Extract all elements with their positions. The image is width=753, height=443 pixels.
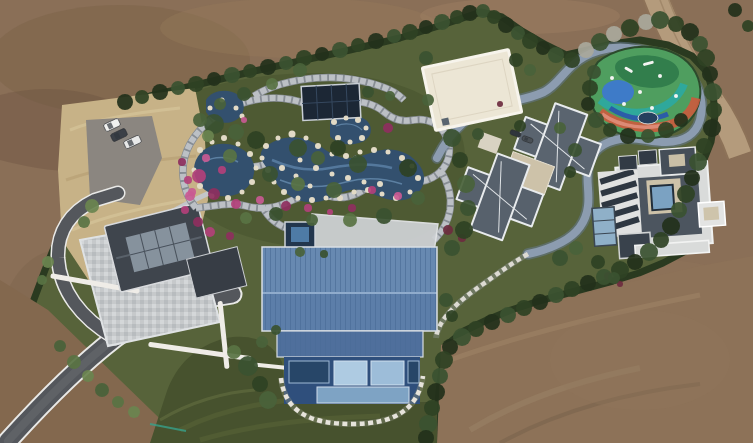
flower-bed [231,199,241,209]
tree [240,212,252,224]
pavilion-roof [301,84,361,121]
flower-bed [202,154,210,162]
flower-bed [205,227,215,237]
flower-bed [394,192,402,200]
pond-rock [304,136,309,141]
tree [432,368,448,384]
tree [117,94,133,110]
tree [516,300,532,316]
roof-seams [262,247,437,331]
tree [214,98,226,110]
tree [402,24,418,40]
tree [548,47,564,63]
tree [588,112,604,128]
tree [591,255,605,269]
tree [224,67,240,83]
east-wing-deck [703,207,719,221]
tree [193,113,207,127]
tree [446,310,458,322]
tree [368,33,384,49]
tree [279,56,293,70]
tree [320,250,328,258]
tree [243,64,257,78]
tree [608,272,620,284]
flower-bed [226,232,234,240]
pond-rock [377,181,383,187]
tree [419,51,433,65]
flower-bed [256,196,264,204]
tree [427,383,445,401]
tree [460,200,476,216]
tree [434,14,450,30]
conservatory-glass-roof [592,207,617,246]
pond-rock [415,175,421,181]
tree [228,124,244,140]
pond-rock [315,143,321,149]
pond-rock [247,151,253,157]
tree [291,177,305,191]
tree [684,170,700,186]
tree [362,86,374,98]
tree [552,250,568,266]
tree [621,19,639,37]
flower-bed [383,123,393,133]
tree [627,254,643,270]
tree [696,138,712,154]
flower-bed [181,206,189,214]
tree [152,84,168,100]
tree [293,63,307,77]
tree [269,207,283,221]
tree [95,383,109,397]
pond-rock [308,184,313,189]
pond-rock [331,119,337,125]
tree [568,143,582,157]
tree [260,59,276,75]
tree [536,41,550,55]
tree [674,113,688,127]
tree [640,243,658,261]
pond-rock [343,153,349,159]
tree [697,49,715,67]
flower-bed [188,188,196,196]
pond-rock [324,196,329,201]
tree [532,294,548,310]
pond-rock [225,195,231,201]
tree [472,128,484,140]
pond-rock [221,135,227,141]
pond-rock [355,117,361,123]
tree [569,241,583,255]
aerial-photo-canvas [0,0,753,443]
tree [262,166,278,182]
tree [387,29,401,43]
pond-rock [260,156,265,161]
flower-bed [178,158,186,166]
flower-bed [281,201,291,211]
tree [37,275,47,285]
tree [54,340,66,352]
flower-bed [304,204,312,212]
pond-rock [359,135,365,141]
tree [706,102,722,118]
tree [82,370,94,382]
pond-rock [313,165,319,171]
tree [653,232,669,248]
tree [311,151,325,165]
pond-rock [234,106,239,111]
tree [581,97,595,111]
pond-rock [371,147,377,153]
pond-rock [240,190,245,195]
tree [85,199,99,213]
pond-rock [236,142,241,147]
tree [548,287,564,303]
tree [315,47,329,61]
tree [450,10,464,24]
flower-bed [443,225,453,235]
pond-rock [408,190,413,195]
north-hip-deck [669,154,686,167]
pond-rock [309,197,315,203]
tree [457,175,475,193]
main-hall [262,247,437,424]
flower-bed [241,117,247,123]
flower-bed [184,176,192,184]
tree [207,72,221,86]
flower-bed [208,188,220,200]
tree [514,120,526,132]
tree [564,281,580,297]
pond-rock [298,158,303,163]
tree [509,53,523,67]
tree [554,122,566,134]
lower-roof-seams [277,331,423,357]
tree [411,191,425,205]
tree [351,38,365,52]
tree [689,153,707,171]
tree [564,166,576,178]
flower-bed [497,101,503,107]
tree [289,139,307,157]
tree [135,90,149,104]
pond-rock [380,192,385,197]
trampoline [638,112,658,124]
tree [455,221,473,239]
tree [295,247,305,257]
tree [237,87,251,101]
tree [343,213,357,227]
tree [223,149,237,163]
tree [326,182,342,198]
tree [443,129,461,147]
spa-pool [285,222,315,248]
tree [188,76,204,92]
tree [606,26,622,42]
tree [671,202,687,218]
tree [238,356,258,376]
tree [452,152,468,168]
flower-bed [368,186,376,194]
pond-rock [364,126,369,131]
pond-rock [289,131,296,138]
tree [484,314,500,330]
tree [524,64,536,76]
tree [580,275,596,291]
tree [67,355,81,369]
pond-rock [348,140,353,145]
pond-rock [344,116,349,121]
tree [42,256,54,268]
tree [603,123,617,137]
pond-rock [208,106,213,111]
tree [587,65,601,79]
tree [703,119,721,137]
tree [330,140,346,156]
flower-bed [192,169,206,183]
pond-rock [281,189,287,195]
tree [171,81,185,95]
tree [256,336,268,348]
tree [424,400,440,416]
pond-rock [296,196,301,201]
tree [704,83,722,101]
tree [582,80,598,96]
tree [564,52,580,68]
tree [112,396,124,408]
tree [271,325,281,335]
tree [500,307,516,323]
tree [349,155,367,173]
pond-rock [197,183,203,189]
tree [385,91,395,101]
pond-rock [197,147,203,153]
tree [444,240,460,256]
tree [641,129,655,143]
pond-rock [276,136,281,141]
tree [728,3,742,17]
pond-rock [358,150,363,155]
tree [266,78,278,90]
tree [435,351,453,369]
tree [462,5,478,21]
roof-hatch [441,118,449,126]
aerial-photo [0,0,753,443]
tree [651,11,669,29]
pond-rock [386,150,391,155]
pond-rock [352,190,357,195]
tree [78,216,90,228]
flower-bed [218,166,226,174]
tree [399,159,417,177]
tree [620,128,636,144]
tree [259,391,277,409]
pond-rock [362,180,367,185]
tree [677,185,695,203]
tree [332,42,348,58]
pond-rock [254,166,259,171]
tree [702,66,718,82]
tree [422,94,434,106]
flower-bed [327,209,333,215]
pond-rock [330,172,335,177]
tree [376,208,392,224]
tree [247,131,265,149]
flower-bed [193,217,203,227]
tree [227,345,241,359]
tree [522,33,538,49]
tree [202,130,214,142]
courtyard-skylight [651,185,675,210]
tree [128,406,140,418]
tree [658,122,674,138]
tree [662,217,680,235]
pond-rock [345,175,351,181]
tree [419,20,433,34]
flower-bed [348,204,356,212]
pond-rock [249,179,255,185]
tree [252,376,268,392]
tree [439,293,453,307]
pond-rock [279,165,285,171]
tree [306,214,318,226]
